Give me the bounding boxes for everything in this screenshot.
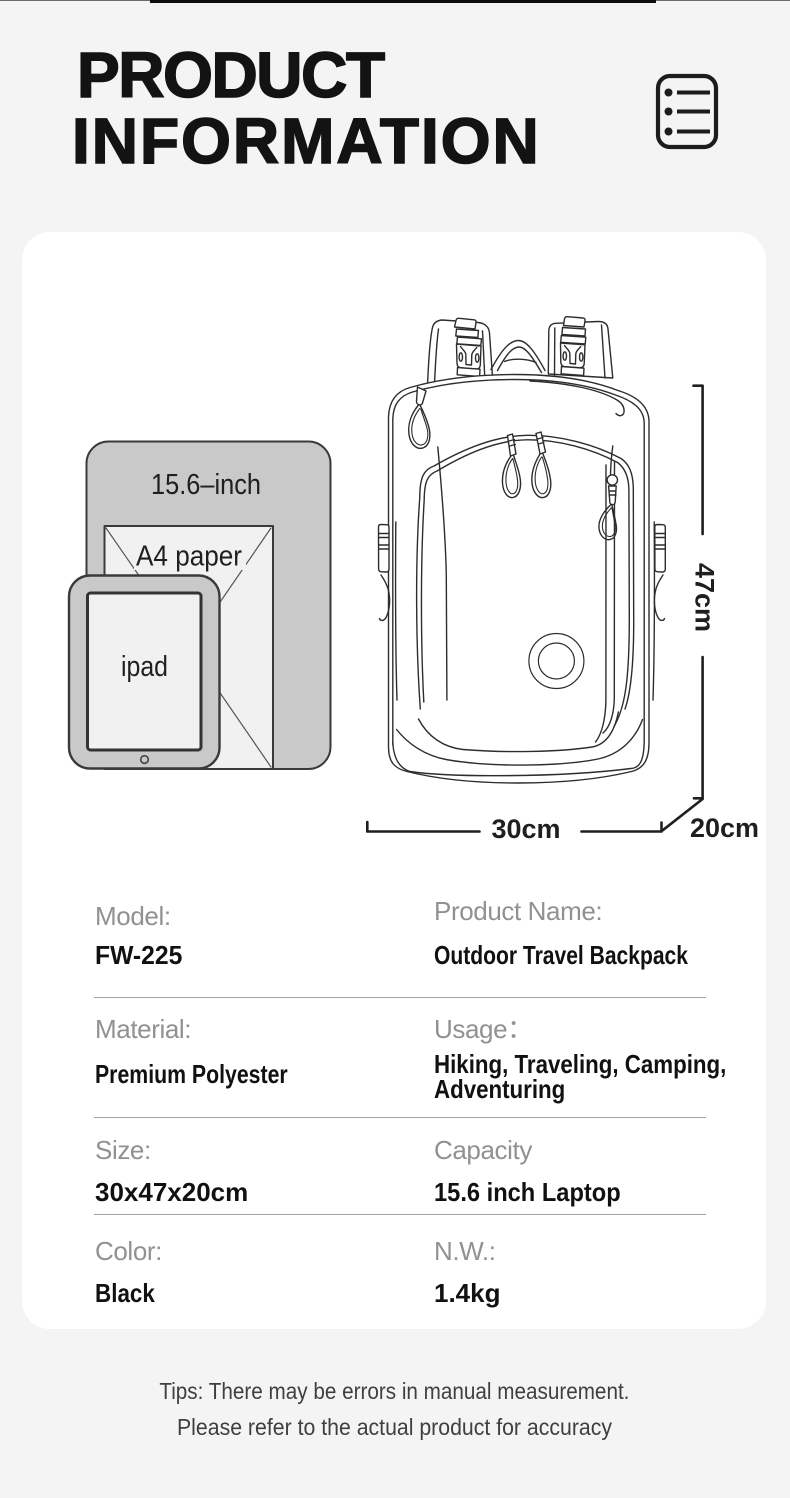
svg-text:20cm: 20cm [690, 813, 759, 843]
svg-text:47cm: 47cm [690, 563, 720, 632]
svg-text:A4 paper: A4 paper [136, 541, 242, 573]
svg-text:15.6–inch: 15.6–inch [151, 469, 261, 501]
svg-text:ipad: ipad [121, 651, 168, 683]
svg-text:30cm: 30cm [491, 814, 560, 844]
